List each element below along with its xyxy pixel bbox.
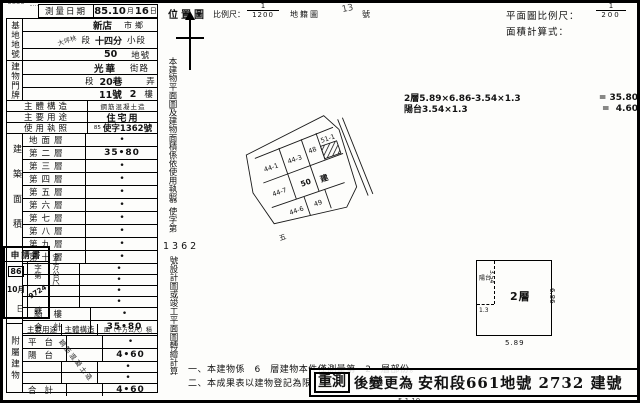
floor-value: • xyxy=(80,297,158,307)
annex-label: 陽台 xyxy=(23,349,67,361)
bottom-partial-text: 5.1.10 xyxy=(398,397,420,403)
site-subsection: 十四分 xyxy=(95,34,122,47)
floor-value: • xyxy=(86,239,158,249)
cadastral-sheet-no: 13 xyxy=(341,3,354,15)
structure-label: 主體構造 xyxy=(7,101,88,111)
scale-numerator: 1 xyxy=(247,2,279,11)
floor-value: • xyxy=(80,264,158,274)
application-body: 86 10月 日 字第 9724 號 xyxy=(5,262,48,318)
north-arrow-head xyxy=(185,11,195,20)
scale-denominator: 1200 xyxy=(247,11,279,19)
subject-building-char: 建 xyxy=(318,172,331,185)
scan-mark xyxy=(30,5,38,6)
floor-value: • xyxy=(80,275,158,285)
formula-row-2: 陽台3.54×1.3 = 4.60 xyxy=(404,103,638,114)
floor-value: 35•80 xyxy=(86,148,158,158)
application-year: 86 xyxy=(8,266,23,277)
address-street: 光華 xyxy=(94,61,117,75)
floor-value: • xyxy=(86,135,158,145)
floor-label: 第八層 xyxy=(23,225,86,237)
resurvey-stamp-location: 安和段661地號 2732 建號 xyxy=(418,372,623,393)
structure-value: 鋼筋混凝土造 xyxy=(88,101,158,111)
survey-date-day: 16 xyxy=(135,6,149,17)
cadastral-sketch: 44-1 44-3 48 51-1 44-7 50 44-6 49 建 五 xyxy=(230,103,380,251)
floor-row: 第三層• xyxy=(23,160,158,173)
address-lane-row: 段 20巷 弄 xyxy=(23,75,158,88)
floors-unit-label: （平方公尺） xyxy=(51,249,61,291)
floor-value: • xyxy=(86,226,158,236)
note-line-2: 二、本成果表以建物登記為限 xyxy=(188,376,312,389)
main-table: 基地地號 新店 市鄉 大坪林 段 十四分 小段 50 地號 建物門牌 光華 街路… xyxy=(6,18,158,393)
annex-side-label: 附屬建物 xyxy=(7,324,23,393)
address-side-label: 建物門牌 xyxy=(7,61,23,101)
plan-scale-label: 平面圖比例尺： xyxy=(506,8,580,22)
floor-label: 第四層 xyxy=(23,173,86,185)
survey-form-page: 測量日期 85.10月16日 基地地號 新店 市鄉 大坪林 段 十四分 小段 5… xyxy=(0,0,640,403)
address-floor-unit: 樓 xyxy=(144,88,153,100)
annex-value: 4•60 xyxy=(103,350,158,360)
north-arrow-crossbar xyxy=(176,37,204,39)
balcony-dashed-line-h xyxy=(477,304,494,305)
annex-value: • xyxy=(98,362,158,372)
resurvey-stamp-box: 重測 後變更為 安和段661地號 2732 建號 xyxy=(309,368,639,397)
floor-value: • xyxy=(86,161,158,171)
floors-side-label: 建築面積 xyxy=(10,144,23,244)
address-street-row: 光華 街路 xyxy=(23,61,158,75)
floor-row: 第八層• xyxy=(23,225,158,238)
annex-value: 4•60 xyxy=(103,385,158,395)
vertical-note-part2: 使字第 xyxy=(166,207,178,237)
license-row: 使用執照 85 使字1362號 xyxy=(7,123,158,134)
annex-header-row: 主要用途 主體構造 面（平方公尺）積 xyxy=(23,324,158,336)
annex-grid: 主要用途 主體構造 面（平方公尺）積 平台• 陽台4•60 • • 合計4•60 xyxy=(23,324,158,393)
floor-value: • xyxy=(91,309,158,319)
application-box: 申請書 86 10月 日 字第 9724 號 xyxy=(3,246,50,319)
annex-value: • xyxy=(98,373,158,383)
site-section-row: 大坪林 段 十四分 小段 xyxy=(23,32,158,49)
formula-1-result: = 35.80 xyxy=(599,93,638,103)
application-day: 日 xyxy=(17,303,25,314)
annex-total-row: 合計4•60 xyxy=(23,384,158,396)
subject-parcel-label: 50 xyxy=(299,177,312,189)
floor-label: 第三層 xyxy=(23,160,86,172)
parcel-label: 44-3 xyxy=(286,153,303,165)
day-unit: 日 xyxy=(150,6,157,16)
address-seg-unit: 段 xyxy=(85,75,94,87)
survey-date-value: 85.10月16日 xyxy=(94,5,157,17)
site-lot-unit: 地號 xyxy=(131,49,150,61)
resurvey-stamp-middle: 後變更為 xyxy=(354,373,414,393)
floor-row: 第六層• xyxy=(23,199,158,212)
vertical-note-small: 85 xyxy=(170,199,177,205)
site-section-unit: 段 xyxy=(82,34,91,46)
application-title: 申請書 xyxy=(5,248,48,262)
site-lot-row: 50 地號 xyxy=(23,49,158,61)
plan-scale-numerator: 1 xyxy=(596,2,626,11)
floor-label: 第六層 xyxy=(23,199,86,211)
application-no-value: 9724 xyxy=(28,283,49,300)
license-value-wrap: 85 使字1362號 xyxy=(88,122,158,134)
map-margin-char: 五 xyxy=(278,233,287,243)
balcony-width-dim: 1.3 xyxy=(479,307,489,314)
site-city-row: 新店 市鄉 xyxy=(23,19,158,32)
location-scale-fraction: 1 1200 xyxy=(247,2,279,19)
floor-row: 第七層• xyxy=(23,212,158,225)
map-boundary xyxy=(237,112,364,234)
plan-scale-fraction: 1 200 xyxy=(596,2,626,19)
survey-date-ym: 85.10 xyxy=(94,6,126,17)
floor-label: 第二層 xyxy=(23,147,86,159)
floor-row: 第四層• xyxy=(23,173,158,186)
location-scale-label: 比例尺： xyxy=(213,9,245,20)
cadastral-sheet-label: 地籍圖 xyxy=(290,9,320,20)
formula-2-expr: 陽台3.54×1.3 xyxy=(404,102,468,115)
application-month: 10月 xyxy=(7,284,25,295)
area-calc-label: 面積計算式： xyxy=(506,24,569,38)
survey-date-row: 測量日期 85.10月16日 xyxy=(38,4,158,18)
annex-header-structure: 主體構造 xyxy=(62,324,98,335)
address-lane: 20巷 xyxy=(100,74,123,88)
annex-structure-cell xyxy=(67,384,103,396)
use-label: 主要用途 xyxy=(7,112,88,122)
annex-label: 合計 xyxy=(23,384,67,396)
annex-value: • xyxy=(103,337,158,347)
floor-row: 第二層35•80 xyxy=(23,147,158,160)
floor-label: 地面層 xyxy=(23,134,86,146)
floor-label: 第七層 xyxy=(23,212,86,224)
site-section-handwritten: 大坪林 xyxy=(56,32,78,48)
parcel-label: 44-6 xyxy=(288,205,305,217)
license-prefix: 85 xyxy=(94,125,101,131)
floor-value: • xyxy=(86,252,158,262)
site-lot: 50 xyxy=(104,49,117,60)
vertical-note-number: 1362 xyxy=(163,241,199,252)
annex-header-area: 面（平方公尺）積 xyxy=(98,325,158,334)
site-side-label: 基地地號 xyxy=(7,19,23,61)
address-street-unit: 街路 xyxy=(130,62,149,74)
license-value: 使字1362號 xyxy=(103,122,152,134)
annex-row: 平台• xyxy=(23,336,158,349)
application-date-col: 86 10月 日 xyxy=(5,262,27,318)
plan-height-dim: 6.86 xyxy=(548,288,556,304)
north-arrow-shaft xyxy=(189,16,191,70)
address-floor-no: 2 xyxy=(130,89,137,100)
application-no-col: 字第 9724 號 xyxy=(27,262,48,318)
scan-mark xyxy=(8,3,24,4)
cadastral-sheet-unit: 號 xyxy=(362,9,370,20)
license-label: 使用執照 xyxy=(7,123,88,133)
parcel-label: 44-1 xyxy=(263,161,280,173)
floor-plan-label: 2層 xyxy=(510,288,531,304)
vertical-note-part1: 本建物平面圖及建物面積係依使用執照 xyxy=(166,57,178,203)
floor-row: 第五層• xyxy=(23,186,158,199)
floor-value: • xyxy=(86,213,158,223)
floor-value: • xyxy=(86,200,158,210)
parcel-label: 44-7 xyxy=(271,186,288,198)
parcel-label: 49 xyxy=(313,198,323,208)
annex-row: 陽台4•60 xyxy=(23,349,158,362)
plan-width-dim: 5.89 xyxy=(505,339,525,347)
annex-header-use: 主要用途 xyxy=(23,324,62,335)
site-subsection-unit: 小段 xyxy=(127,34,146,46)
balcony-height-dim: 3.54 xyxy=(488,270,495,283)
floor-value: • xyxy=(86,174,158,184)
annex-label xyxy=(23,373,62,383)
application-no-suffix: 號 xyxy=(34,305,42,316)
floor-row: 地面層• xyxy=(23,134,158,147)
vertical-note-part3: 號設計圖或竣工平面圖轉繪計算 xyxy=(167,256,179,394)
plan-scale-denominator: 200 xyxy=(596,11,626,19)
address-no: 11號 xyxy=(99,87,122,101)
annex-label xyxy=(23,362,62,372)
floor-value: • xyxy=(80,286,158,296)
site-city: 新店 xyxy=(93,18,112,32)
formula-2-result: = 4.60 xyxy=(602,104,638,114)
application-no-prefix: 字第 xyxy=(33,264,44,279)
address-alley-unit: 弄 xyxy=(146,75,155,87)
resurvey-stamp-boxed-word: 重測 xyxy=(314,372,350,393)
month-unit: 月 xyxy=(127,6,134,16)
floor-label: 第五層 xyxy=(23,186,86,198)
parcel-label: 48 xyxy=(307,145,317,155)
floor-value: • xyxy=(86,187,158,197)
survey-date-label: 測量日期 xyxy=(39,5,94,17)
site-city-unit: 市鄉 xyxy=(124,20,146,31)
